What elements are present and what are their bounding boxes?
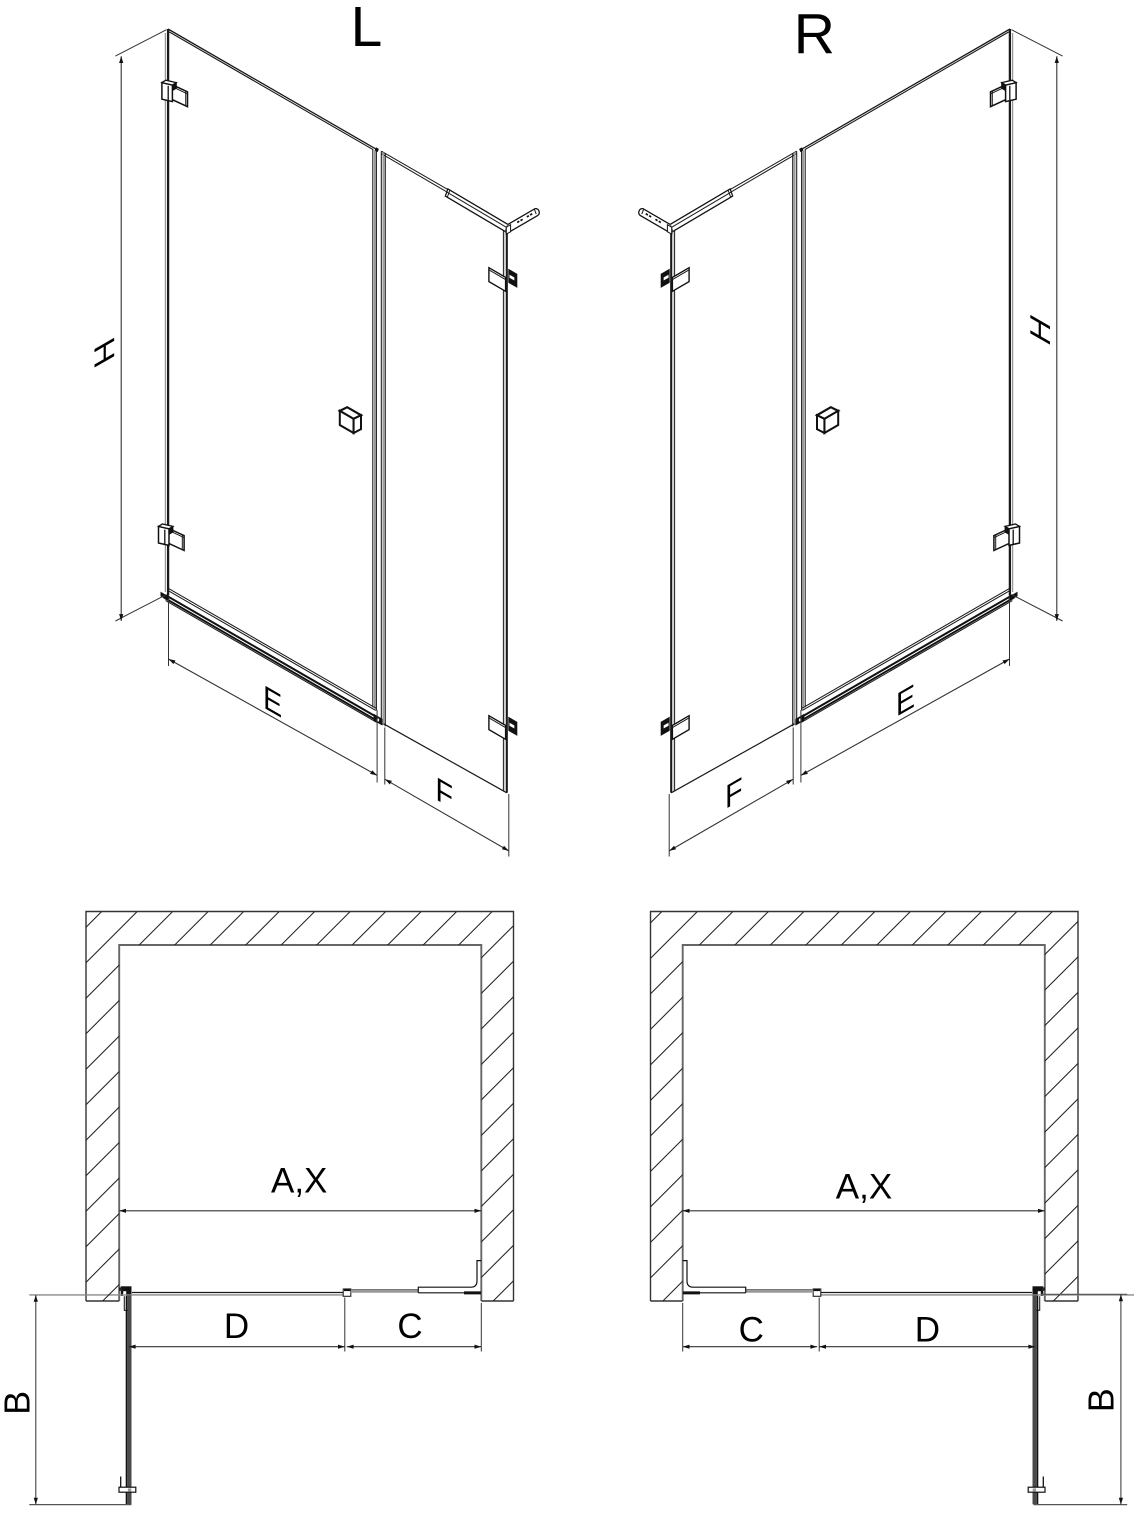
svg-text:B: B [1081, 1388, 1122, 1412]
svg-text:A,X: A,X [836, 1167, 892, 1206]
svg-text:B: B [0, 1391, 37, 1415]
svg-text:R: R [794, 2, 835, 66]
svg-text:L: L [351, 0, 383, 59]
svg-text:C: C [397, 1307, 422, 1346]
svg-text:C: C [739, 1311, 764, 1350]
svg-text:D: D [915, 1311, 940, 1350]
svg-text:D: D [224, 1307, 249, 1346]
svg-text:A,X: A,X [271, 1162, 327, 1201]
